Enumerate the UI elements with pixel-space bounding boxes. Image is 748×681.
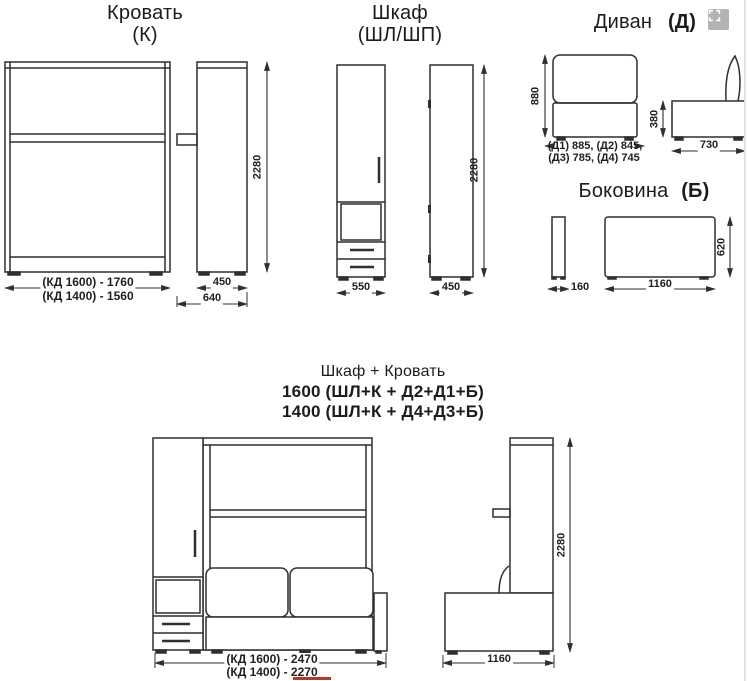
dim-bed-depth-total: 640 — [201, 292, 223, 305]
dim-side-panel-height: 620 — [716, 238, 729, 256]
sofa-code: (Д) — [668, 11, 696, 33]
dim-cabinet-width: 550 — [350, 281, 372, 294]
combo-side-view — [443, 438, 570, 668]
dim-cabinet-depth: 450 — [440, 281, 462, 294]
sofa-front-view — [545, 55, 644, 146]
dim-sofa-height: 880 — [530, 87, 543, 105]
cabinet-code: (ШЛ/ШП) — [358, 24, 442, 47]
expand-button[interactable] — [708, 9, 729, 30]
combo-front-view — [153, 438, 387, 668]
dim-bed-width-1400: (КД 1400) - 1560 — [40, 290, 135, 303]
dim-combo-height: 2280 — [556, 533, 569, 557]
bed-title: Кровать — [107, 2, 183, 25]
sofa-side-view — [663, 56, 745, 151]
expand-icon — [708, 9, 721, 22]
bed-side-view — [177, 62, 267, 307]
bed-front-view — [5, 62, 170, 288]
side-panel-title: Боковина (Б) — [579, 180, 710, 203]
combo-variant-1400: 1400 (ШЛ+К + Д4+Д3+Б) — [282, 402, 484, 422]
dim-side-panel-length: 1160 — [646, 278, 674, 291]
side-panel-code: (Б) — [681, 180, 709, 202]
cabinet-front-view — [337, 65, 385, 293]
dim-bed-height: 2280 — [252, 155, 265, 179]
combo-variant-1600: 1600 (ШЛ+К + Д2+Д1+Б) — [282, 382, 484, 402]
dim-sofa-widths-line2: (Д3) 785, (Д4) 745 — [546, 152, 642, 165]
side-panel-title-text: Боковина — [579, 180, 669, 202]
technical-drawing-canvas — [0, 0, 748, 681]
dim-sofa-seat-height: 380 — [649, 110, 662, 128]
furniture-technical-diagram: Кровать (К) Шкаф (ШЛ/ШП) Диван (Д) Боков… — [0, 0, 748, 681]
combo-title: Шкаф + Кровать — [321, 363, 446, 381]
side-panel-edge-view — [548, 217, 569, 289]
dim-bed-depth-body: 450 — [211, 276, 233, 289]
dim-side-panel-thickness: 160 — [569, 281, 591, 294]
dim-cabinet-height: 2280 — [469, 158, 482, 182]
sofa-title-text: Диван — [594, 11, 652, 33]
progress-dash — [293, 677, 331, 680]
dim-combo-depth: 1160 — [485, 653, 513, 666]
dim-bed-width-1600: (КД 1600) - 1760 — [40, 276, 135, 289]
page-edge-divider — [744, 0, 746, 681]
cabinet-title: Шкаф — [372, 2, 428, 25]
sofa-title: Диван (Д) — [594, 11, 696, 34]
bed-code: (К) — [132, 24, 158, 47]
dim-sofa-depth: 730 — [698, 139, 720, 152]
